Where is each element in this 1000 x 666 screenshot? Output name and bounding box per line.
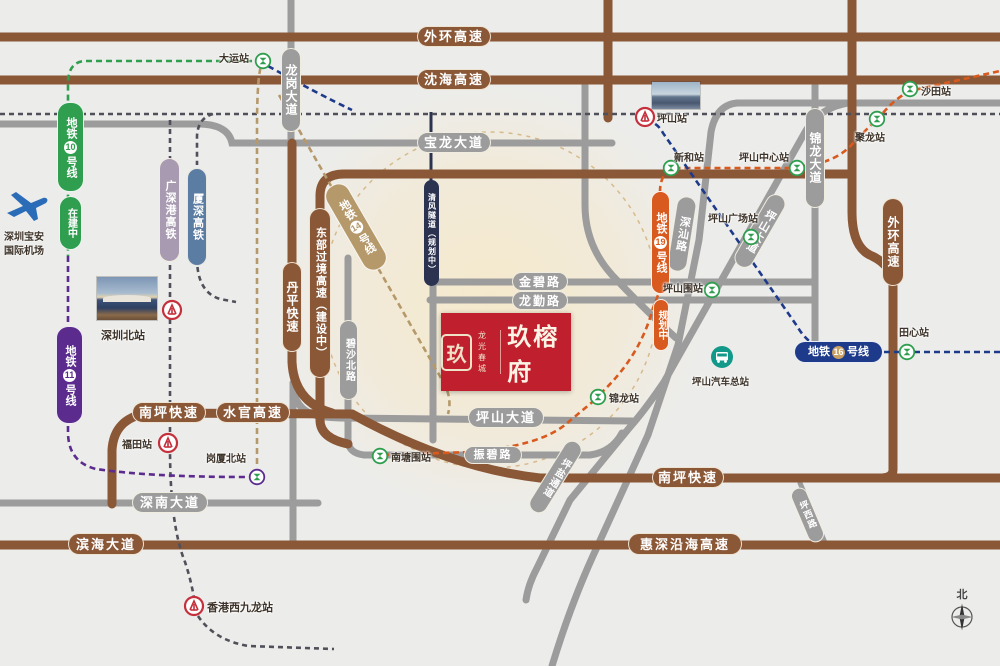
road-label-longqin: 龙勤路: [512, 291, 568, 310]
station-label: 坪山广场站: [708, 210, 758, 225]
project-seal-icon: 玖: [441, 334, 472, 371]
road-label-waihuan-right: 外环高速: [882, 198, 904, 286]
xiashen-branch-south: [197, 258, 236, 302]
compass: 北: [940, 586, 984, 637]
station-label: 坪山站: [657, 110, 687, 125]
metro-line-label-metro-16: 地铁16号线: [794, 341, 883, 363]
metro-line-label-metro-19: 地铁19号线: [651, 191, 670, 294]
road-label-waihuan-top: 外环高速: [417, 26, 491, 47]
station-label: 坪山中心站: [739, 149, 789, 164]
rail-line-label-rail-xiashen: 厦深高铁: [187, 168, 207, 266]
shenzhen-north-station-photo: [97, 277, 157, 320]
road-label-jinbi: 金碧路: [512, 272, 568, 291]
road-label-shuiguan: 水官高速: [216, 402, 290, 423]
compass-north-label: 北: [940, 586, 984, 602]
station-label: 锦龙站: [609, 390, 639, 405]
project-logo: 玖 龙光 春城 玖榕府: [441, 313, 571, 391]
station-label: 新和站: [674, 149, 704, 164]
metro-line-label-metro-10: 地铁10号线: [57, 102, 84, 192]
road-label-jinlong-avenue: 锦龙大道: [805, 108, 825, 208]
compass-icon: [947, 602, 977, 632]
brand-line2: 春城: [478, 352, 494, 374]
bus-station-label: 坪山汽车总站: [692, 374, 749, 388]
road-label-baolong: 宝龙大道: [417, 132, 491, 153]
station-label: 香港西九龙站: [207, 599, 273, 615]
road-label-nanping-west: 南坪快速: [132, 402, 206, 423]
airport-label: 深圳宝安 国际机场: [4, 231, 74, 258]
road-label-nanping-east: 南坪快速: [652, 467, 724, 488]
station-label: 深圳北站: [101, 327, 145, 343]
nanping-left-curl: [112, 413, 148, 504]
metro-line-note-metro-19: 规划中: [653, 299, 669, 351]
station-label: 沙田站: [921, 83, 951, 98]
rail-line-label-rail-guangshengang: 广深港高铁: [159, 158, 180, 262]
road-label-dongbu: 东部过境高速（建设中）: [309, 208, 331, 378]
road-label-longgang: 龙岗大道: [281, 48, 301, 132]
station-label: 聚龙站: [855, 129, 885, 144]
station-label: 南塘围站: [391, 449, 431, 464]
metro-line-label-metro-11: 地铁11号线: [56, 326, 83, 424]
guangshengang-to-kowloon: [198, 616, 334, 649]
brand-line1: 龙光: [478, 330, 494, 352]
pingshan-station-photo: [652, 82, 700, 109]
road-label-binhai: 滨海大道: [68, 533, 144, 555]
road-label-shenhai: 沈海高速: [417, 69, 491, 90]
project-brand: 龙光 春城: [478, 330, 501, 375]
transit-location-map: 玖 龙光 春城 玖榕府 深圳宝安 国际机场 坪山汽车总站 北: [0, 0, 1000, 666]
road-label-zhenbi: 振碧路: [464, 446, 522, 464]
road-label-danping: 丹平快速: [282, 262, 302, 352]
road-label-huishen-coastal: 惠深沿海高速: [628, 533, 742, 555]
project-name: 玖榕府: [507, 317, 571, 387]
road-label-qingfeng-tunnel: 清风隧道（规划中）: [424, 180, 439, 286]
station-label: 福田站: [122, 436, 152, 451]
station-label: 大运站: [219, 50, 249, 65]
station-label: 岗厦北站: [206, 450, 246, 465]
station-label: 坪山围站: [663, 280, 703, 295]
road-label-pingshan-avenue: 坪山大道: [468, 407, 544, 428]
airplane-icon: [4, 186, 50, 224]
road-label-shennan: 深南大道: [132, 492, 208, 513]
station-label: 田心站: [899, 324, 929, 339]
road-label-bisha-north: 碧沙北路: [339, 320, 358, 400]
airport-poi: 深圳宝安 国际机场: [4, 186, 74, 258]
